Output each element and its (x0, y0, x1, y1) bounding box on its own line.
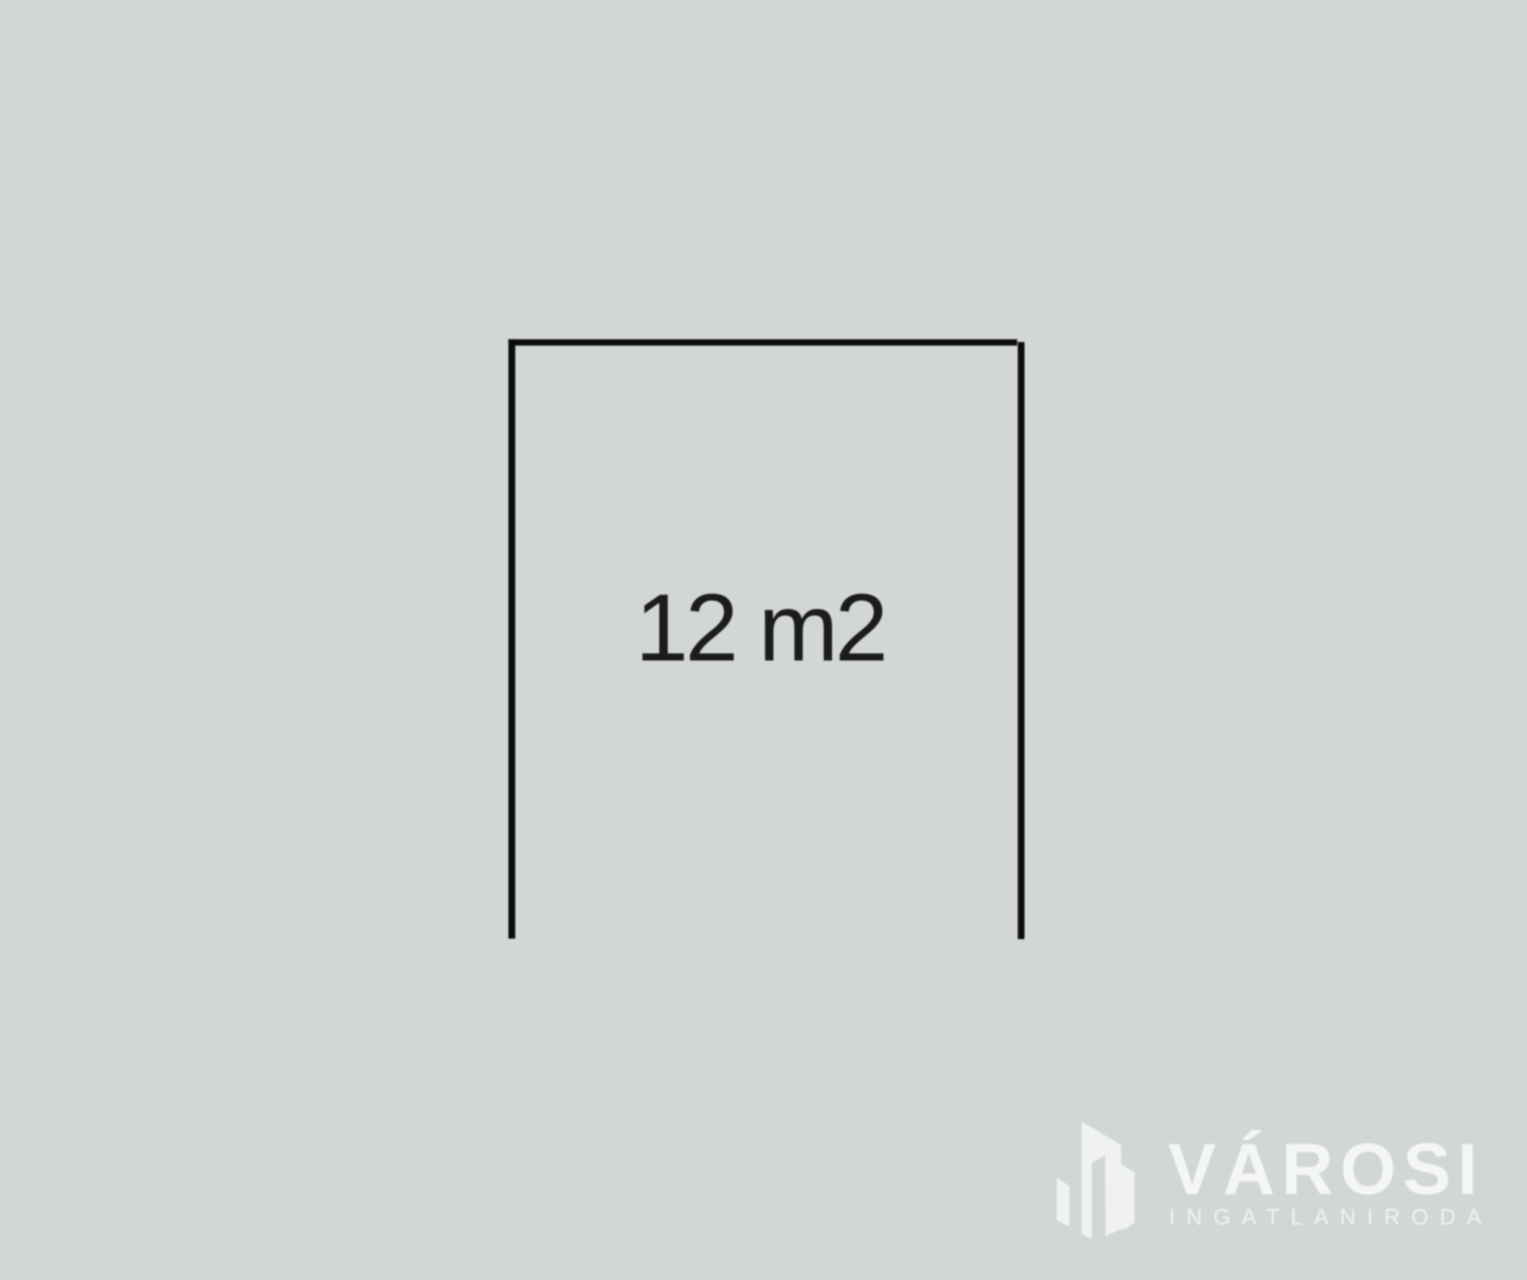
svg-text:VÁROSI: VÁROSI (1168, 1130, 1484, 1210)
svg-text:INGATLANIRODA: INGATLANIRODA (1169, 1205, 1493, 1230)
svg-text:12 m2: 12 m2 (635, 575, 885, 682)
